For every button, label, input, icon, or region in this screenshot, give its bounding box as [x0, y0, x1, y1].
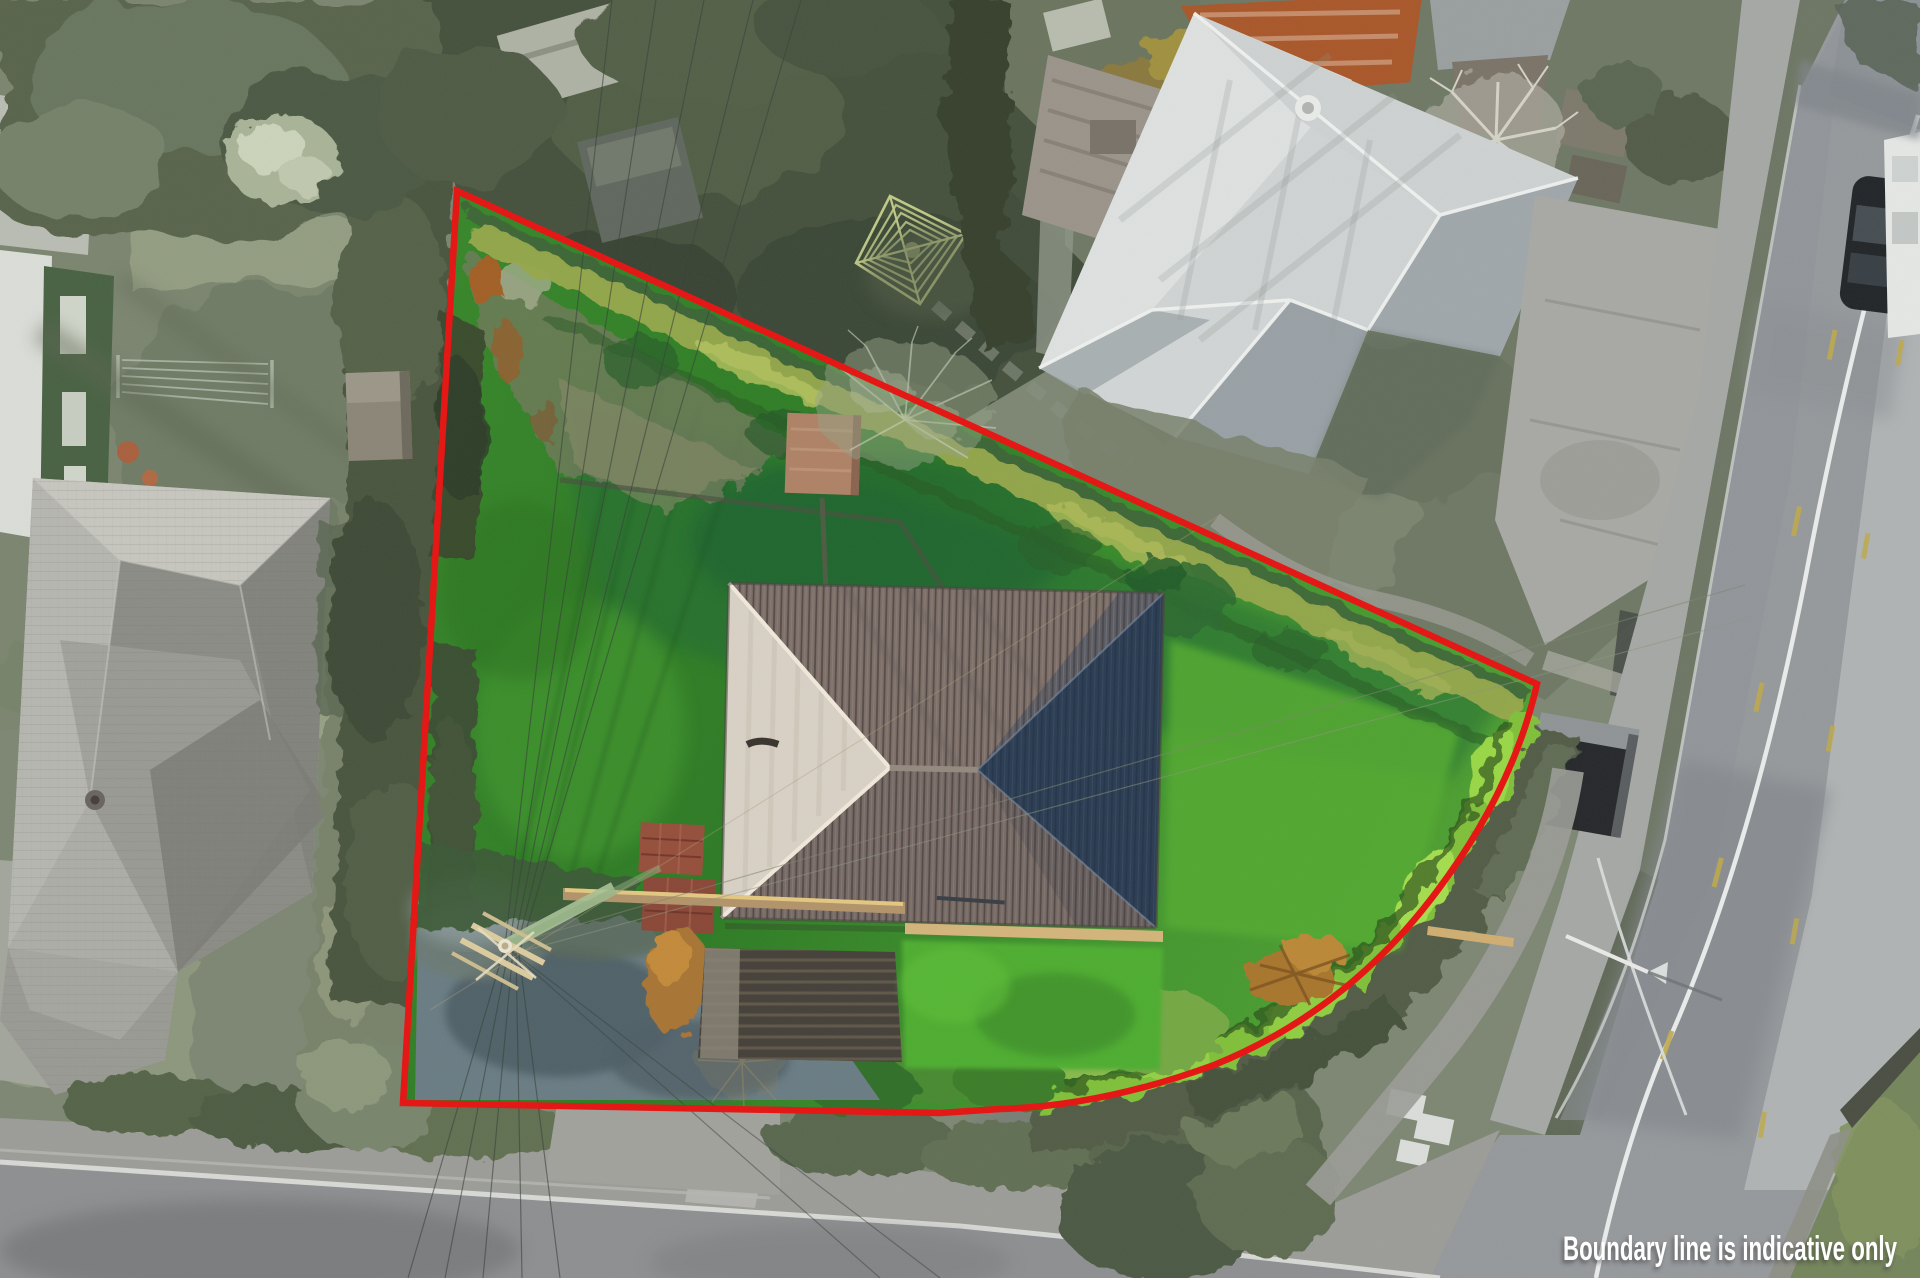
svg-text:Boundary line is indicative on: Boundary line is indicative only [1563, 1230, 1897, 1268]
